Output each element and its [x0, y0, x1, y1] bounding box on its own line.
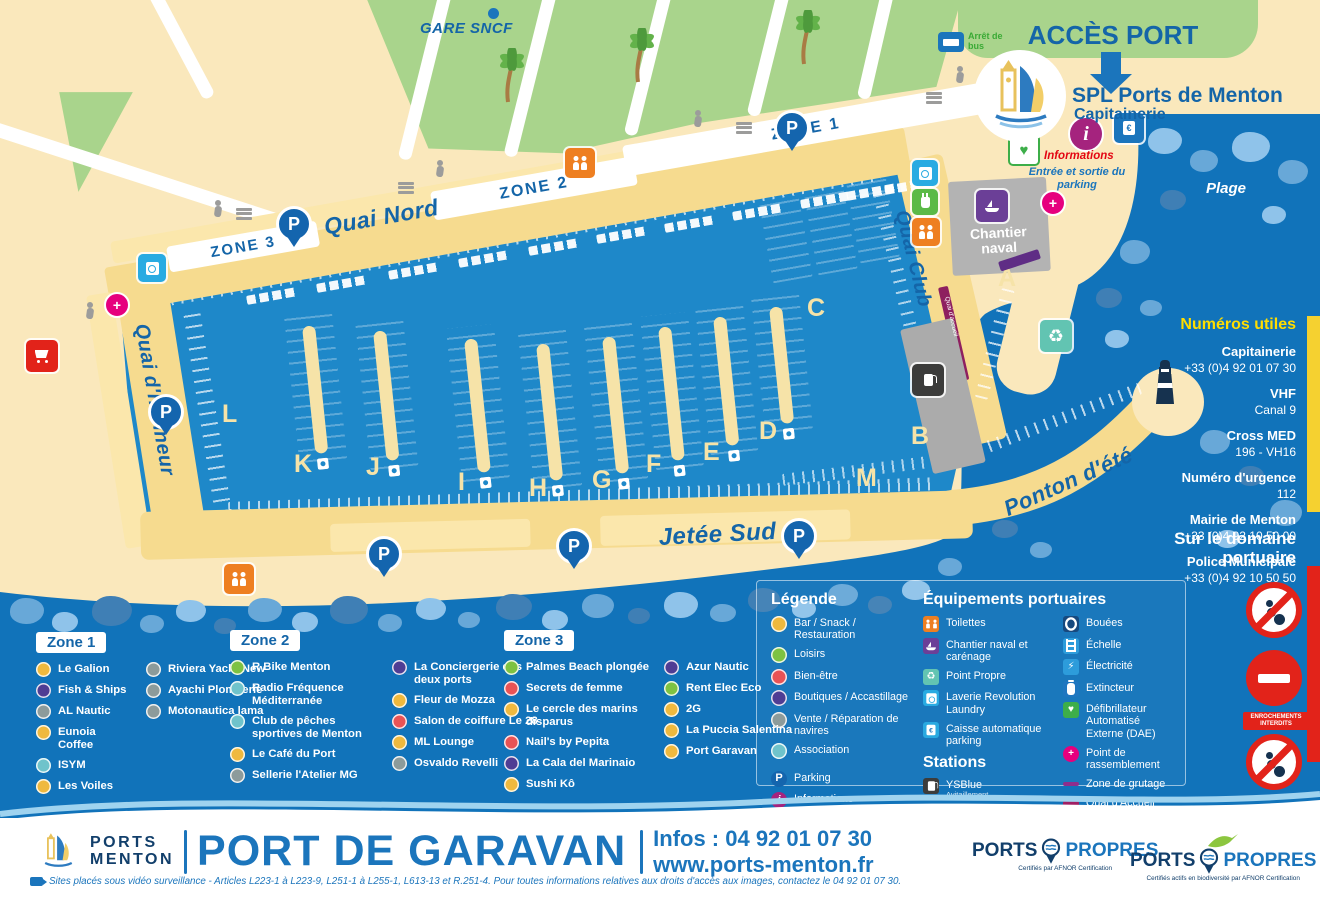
bar-category-icon: [392, 693, 407, 708]
footer-url[interactable]: www.ports-menton.fr: [653, 852, 873, 878]
useful-number: Cross MED196 - VH16: [1136, 428, 1296, 461]
ports-propres-logo-2: PORTS PROPRES Certifiés actifs en biodiv…: [1130, 832, 1316, 882]
directory-item: R Bike Menton: [230, 661, 378, 675]
bar-category-icon: [230, 747, 245, 762]
directory-item: Azur Nautic: [664, 661, 802, 675]
directory-item: Rent Elec Eco: [664, 682, 802, 696]
no-entry-sign: [1246, 650, 1302, 706]
no-fishing-sign: [1246, 582, 1302, 638]
parking-pin: P: [556, 528, 592, 564]
boutiques-category-icon: [504, 756, 519, 771]
bar-category-icon: [36, 662, 51, 677]
bar-category-icon: [664, 744, 679, 759]
useful-number: Capitainerie+33 (0)4 92 01 07 30: [1136, 344, 1296, 377]
laundry-icon: [912, 160, 938, 186]
equipment-item: Échelle: [1063, 639, 1171, 654]
association-category-icon: [36, 758, 51, 773]
capitainerie-logo: [972, 48, 1068, 144]
directory-item: La Cala del Marinaio: [504, 757, 650, 771]
parking-pin: P: [781, 518, 817, 554]
pontoon-letter-m: M: [856, 464, 877, 493]
equipements-title: Équipements portuaires: [923, 591, 1171, 609]
toilets-icon: [224, 564, 254, 594]
palm-tree-icon: [782, 10, 826, 66]
bar-category-icon: [392, 735, 407, 750]
vente-category-icon: [392, 756, 407, 771]
assembly-point-icon: +: [104, 292, 130, 318]
label-chantier-naval: Chantier naval: [952, 223, 1045, 257]
assembly-point-icon: +: [1040, 190, 1066, 216]
bird-icon: [1206, 832, 1240, 848]
equipment-item: Bouées: [1063, 617, 1171, 632]
bienetre-category-icon: [392, 714, 407, 729]
pedestrian-icon: [86, 302, 94, 320]
ports-propres-pin-icon: [1198, 848, 1220, 874]
no-rock-access-sign: [1246, 734, 1302, 790]
pontoon-letter-d: D: [759, 417, 777, 446]
zone-chip: Zone 1: [36, 632, 106, 653]
ports-propres-pin-icon: [1040, 838, 1062, 864]
directory-item: Radio Fréquence Méditerranée: [230, 682, 378, 708]
extinguisher-icon: [1063, 681, 1079, 697]
directory-item: Le Café du Port: [230, 748, 378, 762]
vente-category-icon: [146, 683, 161, 698]
enrochements-label: ENROCHEMENTS INTERDITS: [1243, 712, 1309, 730]
directory-item: Nail's by Pepita: [504, 736, 650, 750]
surveillance-disclaimer: Sites placés sous vidéo surveillance - A…: [30, 876, 901, 887]
zone-chip: Zone 2: [230, 630, 300, 651]
directory-item: Port Garavan: [664, 745, 802, 759]
pedestrian-icon: [436, 160, 444, 178]
recycle-icon: ♻: [923, 669, 939, 685]
yellow-edge-bar: [1307, 316, 1320, 512]
pontoon-letter-f: F: [646, 450, 661, 479]
parking-pin: P: [148, 394, 184, 430]
vente-category-icon: [36, 704, 51, 719]
pontoon-letter-b: B: [911, 422, 929, 451]
point-propre-icon: ♻: [1040, 320, 1072, 352]
useful-number: Numéro d'urgence112: [1136, 470, 1296, 503]
zone-chip: Zone 3: [504, 630, 574, 651]
directory-item: Le cercle des marins disparus: [504, 703, 650, 729]
directory-item: 2G: [664, 703, 802, 717]
port-map-poster: ZONE 3 ZONE 2 ZONE 1 Quai Nord Quai d'ho…: [0, 0, 1320, 898]
boutiques-category-icon: [664, 660, 679, 675]
association-category-icon: [230, 714, 245, 729]
directory-item: ISYM: [36, 759, 132, 773]
loisirs-category-icon: [664, 681, 679, 696]
informations-label: Informations: [1044, 150, 1114, 162]
stairs-icon: [736, 120, 752, 135]
vente-category-icon: [146, 662, 161, 677]
pontoon-letter-h: H: [529, 474, 547, 503]
fuel-station-icon: [912, 364, 944, 396]
palm-tree-icon: [616, 28, 660, 84]
ports-menton-logo-icon: [36, 828, 80, 876]
chantier-naval-icon: [976, 190, 1008, 222]
laundry-icon: [923, 690, 939, 706]
equipment-item: €Caisse automatique parking: [923, 723, 1051, 748]
heart-icon: ♥: [1063, 702, 1079, 718]
bar-category-icon: [504, 702, 519, 717]
vente-category-icon: [230, 768, 245, 783]
numeros-utiles-title: Numéros utiles: [1136, 316, 1296, 334]
footer-title: PORT DE GARAVAN: [197, 827, 626, 876]
zone-directory-3: Zone 3Palmes Beach plongéeSecrets de fem…: [504, 630, 802, 792]
equipment-item: ♻Point Propre: [923, 670, 1051, 685]
card-icon: €: [923, 722, 939, 738]
loisirs-category-icon: [230, 660, 245, 675]
palm-tree-icon: [486, 48, 530, 104]
charging-station-icon: [912, 189, 938, 215]
parking-pin: P: [774, 110, 810, 146]
directory-item: Eunoia Coffee: [36, 726, 132, 752]
boat-icon: [923, 638, 939, 654]
pontoon-letter-j: J: [366, 453, 380, 482]
laundry-icon: [138, 254, 166, 282]
directory-item: Palmes Beach plongée: [504, 661, 650, 675]
plage-label: Plage: [1206, 180, 1246, 197]
pontoon-letter-c: C: [807, 294, 825, 323]
loisirs-category-icon: [504, 660, 519, 675]
stairs-icon: [236, 206, 252, 221]
parking-pin: P: [276, 206, 312, 242]
footer-contact: Infos : 04 92 01 07 30 www.ports-menton.…: [653, 826, 873, 878]
legend-equipements-column: Équipements portuaires ToilettesChantier…: [923, 591, 1171, 775]
ladder-icon: [1063, 638, 1079, 654]
equipment-item: Laverie Revolution Laundry: [923, 691, 1051, 716]
stairs-icon: [398, 180, 414, 195]
directory-item: Fish & Ships: [36, 684, 132, 698]
pontoon-letter-k: K: [294, 450, 312, 479]
plus-icon: +: [1063, 746, 1079, 762]
ports-menton-wordmark: PORTS MENTON: [90, 835, 174, 869]
zone-directory-2: Zone 2R Bike MentonRadio Fréquence Médit…: [230, 630, 542, 783]
directory-item: Sellerie l'Atelier MG: [230, 769, 378, 783]
directory-item: Secrets de femme: [504, 682, 650, 696]
equipment-item: ♥Défibrillateur Automatisé Externe (DAE): [1063, 703, 1171, 740]
bar-category-icon: [664, 702, 679, 717]
gare-sncf-label: GARE SNCF: [420, 20, 513, 37]
pedestrian-icon: [214, 200, 222, 218]
capitainerie-subtitle: Capitainerie: [1074, 106, 1166, 124]
spl-title: SPL Ports de Menton: [1072, 84, 1283, 108]
vente-category-icon: [146, 704, 161, 719]
toilets-icon: [912, 218, 940, 246]
pontoon-letter-l: L: [222, 400, 237, 429]
camera-icon: [30, 877, 43, 886]
directory-item: AL Nautic: [36, 705, 132, 719]
footer-phone: Infos : 04 92 01 07 30: [653, 826, 873, 852]
boutiques-category-icon: [392, 660, 407, 675]
association-category-icon: [230, 681, 245, 696]
bienetre-category-icon: [504, 735, 519, 750]
stairs-icon: [926, 90, 942, 105]
bar-category-icon: [664, 723, 679, 738]
ring-icon: [1063, 616, 1079, 632]
equipment-item: Toilettes: [923, 617, 1051, 632]
bienetre-category-icon: [504, 681, 519, 696]
toilets-icon: [565, 148, 595, 178]
pontoon-letter-e: E: [703, 438, 720, 467]
pedestrian-icon: [956, 66, 964, 84]
bar-category-icon: [36, 725, 51, 740]
equipment-item: Chantier naval et carénage: [923, 639, 1051, 664]
bus-stop-icon: [938, 32, 964, 52]
entree-sortie-label: Entrée et sortie du parking: [1022, 166, 1132, 191]
equipment-item: +Point de rassemblement: [1063, 747, 1171, 772]
legend-panel: Légende Bar / Snack / RestaurationLoisir…: [756, 580, 1186, 786]
boutiques-category-icon: [36, 683, 51, 698]
legend-title: Légende: [771, 591, 909, 609]
equipment-item: ⚡Électricité: [1063, 660, 1171, 675]
acces-port-title: ACCÈS PORT: [1008, 20, 1218, 51]
equipment-item: Extincteur: [1063, 682, 1171, 697]
pontoon-letter-i: I: [458, 468, 465, 497]
directory-item: La Puccia Salentina: [664, 724, 802, 738]
toilets-icon: [923, 616, 939, 632]
useful-number: VHFCanal 9: [1136, 386, 1296, 419]
red-edge-bar: [1307, 566, 1320, 762]
directory-item: Club de pêches sportives de Menton: [230, 715, 378, 741]
stations-title: Stations: [923, 754, 1051, 772]
domaine-title: Sur le domaine portuaire: [1126, 530, 1296, 567]
gare-sncf-dot: [488, 8, 499, 19]
pontoon-letter-g: G: [592, 466, 611, 495]
shop-cart-icon: [26, 340, 58, 372]
pedestrian-icon: [694, 110, 702, 128]
parking-pin: P: [366, 536, 402, 572]
directory-item: Le Galion: [36, 663, 132, 677]
bolt-icon: ⚡: [1063, 659, 1079, 675]
